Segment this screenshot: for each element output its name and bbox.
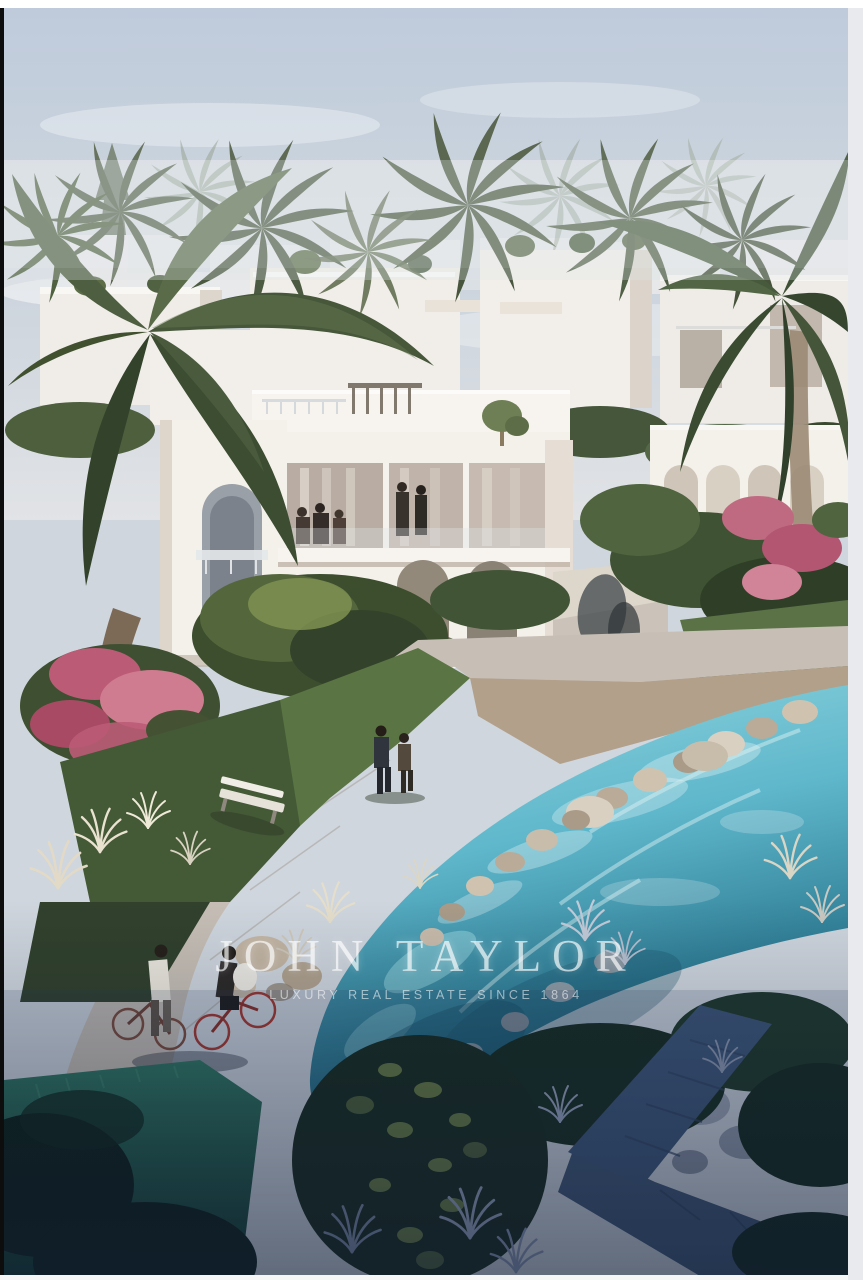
- photo-frame-right: [848, 0, 863, 1280]
- photo-frame-top: [0, 0, 863, 8]
- hedge: [430, 570, 570, 630]
- rendered-villa-scene: [0, 0, 863, 1280]
- photo-frame-bottom: [0, 1275, 848, 1280]
- balcony-glass-rail: [287, 528, 545, 548]
- photo-frame-left: [0, 8, 4, 1275]
- real-estate-photo: JOHN TAYLOR LUXURY REAL ESTATE SINCE 186…: [0, 0, 863, 1280]
